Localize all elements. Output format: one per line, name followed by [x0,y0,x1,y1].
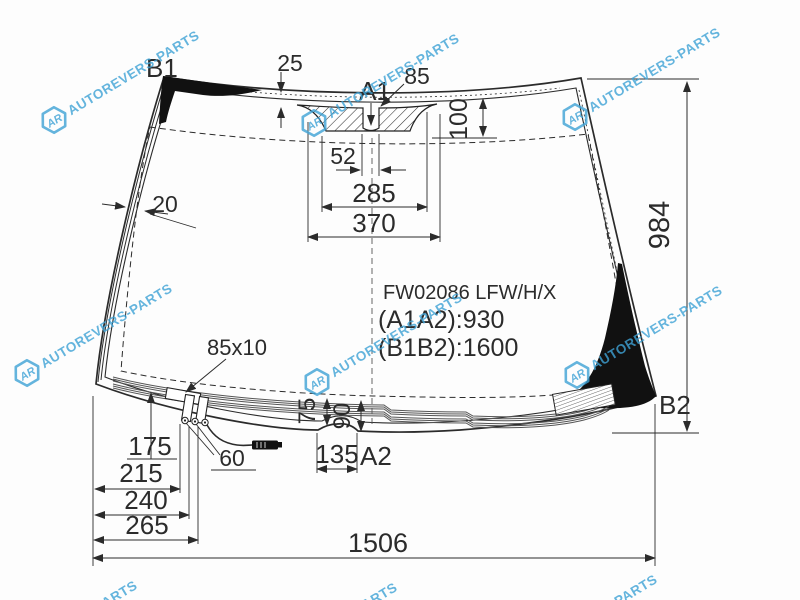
windshield-technical-diagram: AR AUTOREVERS-PARTS [0,0,800,600]
dim-label: 52 [330,143,356,169]
dim-side-band-20: 20 [102,191,196,228]
watermark [235,576,401,600]
glass-inner-edge [105,87,645,423]
dim-label: 100 [445,98,473,140]
dim-hump-width-135: 135 [315,433,358,473]
heater-wire [207,425,252,445]
connector-pad-85x10 [165,388,200,405]
dim-notch-width-52: 52 [330,134,406,176]
dim-pad-offset-175: 175 [127,393,177,461]
dim-wire-length-60: 60 [186,423,256,471]
dim-label: 90 [329,403,356,430]
dim-label: 984 [644,201,676,249]
dim-label: 285 [352,178,395,208]
dim-pad-size-85x10: 85x10 [186,335,267,392]
watermark [558,21,724,133]
marker-a2: A2 [360,441,392,471]
dim-label: 370 [352,208,395,238]
dim-label: 1506 [348,528,408,558]
watermark [0,574,141,600]
dim-label: 20 [152,191,178,217]
dim-label: 215 [119,458,162,488]
wire-connector-plug [252,441,282,450]
ceramic-band-dashed-line [121,127,633,397]
watermark [10,277,176,389]
dim-sensor-height-100: 100 [432,98,497,140]
dim-label: 175 [128,431,171,461]
diagram-canvas: AR AUTOREVERS-PARTS [0,0,800,600]
dim-label: 135 [315,439,358,469]
left-band-line [101,82,169,380]
top-left-black-wedge [159,76,262,124]
dim-label: 85x10 [207,335,267,360]
part-code: FW02086 LFW/H/X [383,282,556,304]
dim-label: 60 [219,445,245,471]
dim-top-band-25: 25 [277,50,303,128]
glass-outline [96,76,656,450]
dim-label: 75 [294,398,321,425]
dim-label: 265 [125,510,168,540]
watermark [495,568,661,600]
marker-b2: B2 [659,390,691,420]
dim-label: 25 [277,50,303,76]
